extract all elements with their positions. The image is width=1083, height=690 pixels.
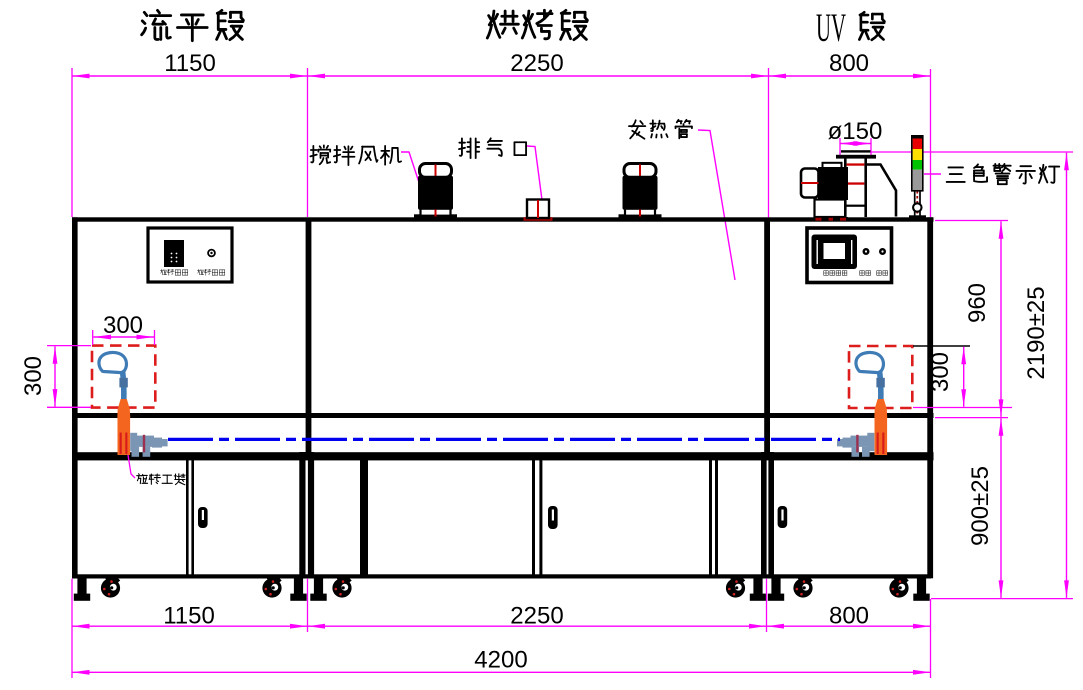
svg-text:800: 800 <box>829 50 869 77</box>
svg-text:1150: 1150 <box>163 603 215 630</box>
svg-text:UV: UV <box>816 5 846 50</box>
svg-text:900±25: 900±25 <box>967 466 994 546</box>
svg-text:300: 300 <box>20 356 47 396</box>
svg-text:ø150: ø150 <box>828 118 883 145</box>
svg-text:800: 800 <box>829 603 869 630</box>
svg-text:300: 300 <box>927 352 954 392</box>
svg-text:960: 960 <box>964 283 991 323</box>
svg-text:4200: 4200 <box>474 647 527 674</box>
svg-text:300: 300 <box>103 312 143 339</box>
svg-text:2190±25: 2190±25 <box>1023 286 1050 379</box>
svg-text:2250: 2250 <box>510 603 563 630</box>
svg-text:1150: 1150 <box>164 50 216 77</box>
svg-text:2250: 2250 <box>510 50 563 77</box>
